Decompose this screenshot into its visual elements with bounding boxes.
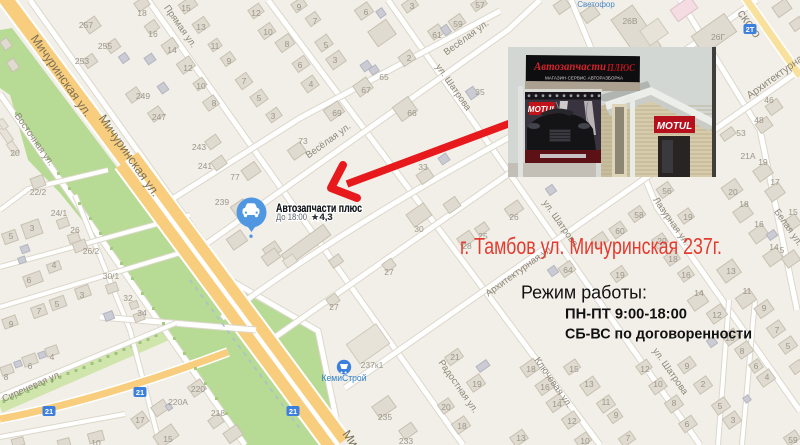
svg-text:255: 255 xyxy=(98,41,112,51)
svg-text:48: 48 xyxy=(754,115,764,125)
svg-text:58: 58 xyxy=(634,210,644,220)
svg-text:7: 7 xyxy=(775,325,780,335)
svg-text:6: 6 xyxy=(685,419,690,429)
svg-text:6: 6 xyxy=(754,361,759,371)
svg-text:14: 14 xyxy=(769,242,779,252)
svg-text:10: 10 xyxy=(196,81,206,91)
svg-text:19: 19 xyxy=(758,157,768,167)
svg-text:13: 13 xyxy=(196,22,206,32)
svg-text:21: 21 xyxy=(289,407,297,416)
svg-text:26: 26 xyxy=(70,225,80,235)
svg-text:26Г: 26Г xyxy=(711,32,725,42)
svg-text:61: 61 xyxy=(432,30,442,40)
svg-text:18: 18 xyxy=(457,421,467,431)
svg-text:20: 20 xyxy=(728,187,738,197)
svg-text:6: 6 xyxy=(28,361,33,371)
svg-text:СБ-ВС по договоренности: СБ-ВС по договоренности xyxy=(565,326,752,343)
svg-text:9: 9 xyxy=(227,56,232,66)
svg-text:26В: 26В xyxy=(622,16,637,26)
svg-text:16: 16 xyxy=(148,29,158,39)
svg-text:8: 8 xyxy=(740,346,745,356)
svg-text:18: 18 xyxy=(137,8,147,18)
svg-text:19: 19 xyxy=(472,379,482,389)
svg-text:59: 59 xyxy=(453,19,463,29)
svg-text:4: 4 xyxy=(50,352,55,362)
svg-text:9: 9 xyxy=(762,303,767,313)
svg-text:46: 46 xyxy=(764,95,774,105)
svg-text:12: 12 xyxy=(567,416,577,426)
svg-text:14: 14 xyxy=(167,45,177,55)
svg-text:7: 7 xyxy=(37,306,42,316)
svg-text:56: 56 xyxy=(662,186,672,196)
svg-text:12: 12 xyxy=(251,8,261,18)
svg-text:11: 11 xyxy=(211,41,220,51)
svg-text:64: 64 xyxy=(563,265,573,275)
svg-text:г. Тамбов ул. Мичуринская 237г: г. Тамбов ул. Мичуринская 237г. xyxy=(460,233,722,259)
svg-text:66: 66 xyxy=(407,108,417,118)
svg-text:4,3: 4,3 xyxy=(320,212,333,223)
svg-text:8: 8 xyxy=(672,398,677,408)
svg-text:4: 4 xyxy=(52,260,57,270)
svg-text:9: 9 xyxy=(614,410,619,420)
svg-text:21А: 21А xyxy=(740,151,755,161)
svg-text:3: 3 xyxy=(80,290,85,300)
svg-text:21: 21 xyxy=(45,407,53,416)
svg-text:6: 6 xyxy=(364,7,369,17)
svg-text:20: 20 xyxy=(10,148,20,158)
svg-text:241: 241 xyxy=(198,161,212,171)
svg-text:МАГАЗИН·СЕРВИС·АВТОРАЗБОРКА: МАГАЗИН·СЕРВИС·АВТОРАЗБОРКА xyxy=(545,76,623,81)
svg-text:6: 6 xyxy=(298,60,303,70)
svg-text:30/1: 30/1 xyxy=(103,271,120,281)
svg-text:247: 247 xyxy=(152,112,166,122)
svg-text:10: 10 xyxy=(263,27,273,37)
svg-text:243: 243 xyxy=(192,142,206,152)
svg-text:10: 10 xyxy=(653,379,663,389)
svg-text:33: 33 xyxy=(418,162,428,172)
svg-text:10: 10 xyxy=(91,438,101,445)
svg-text:★: ★ xyxy=(311,212,319,222)
svg-text:19: 19 xyxy=(615,270,625,280)
svg-text:69: 69 xyxy=(332,108,342,118)
svg-text:34: 34 xyxy=(137,308,147,318)
svg-text:17: 17 xyxy=(770,177,780,187)
svg-text:218: 218 xyxy=(211,408,225,418)
svg-text:77: 77 xyxy=(230,172,240,182)
svg-text:Автозапчасти: Автозапчасти xyxy=(533,59,606,73)
svg-text:5: 5 xyxy=(786,341,791,351)
svg-text:4: 4 xyxy=(765,372,770,382)
svg-text:32: 32 xyxy=(123,293,133,303)
svg-text:220: 220 xyxy=(191,384,205,394)
svg-text:22/2: 22/2 xyxy=(30,187,47,197)
svg-text:239: 239 xyxy=(215,197,229,207)
svg-text:27: 27 xyxy=(329,302,339,312)
svg-text:12: 12 xyxy=(640,364,650,374)
svg-text:3: 3 xyxy=(30,223,35,233)
svg-text:253: 253 xyxy=(75,56,89,66)
svg-text:35: 35 xyxy=(475,87,485,97)
svg-text:26/2: 26/2 xyxy=(83,246,100,256)
svg-text:235: 235 xyxy=(378,412,392,422)
svg-text:5: 5 xyxy=(257,93,262,103)
svg-text:9: 9 xyxy=(685,361,690,371)
svg-text:2: 2 xyxy=(407,53,412,63)
svg-text:4: 4 xyxy=(309,79,314,89)
svg-text:21: 21 xyxy=(450,352,460,362)
svg-text:67: 67 xyxy=(361,85,371,95)
svg-text:MOTUL: MOTUL xyxy=(657,121,693,132)
svg-text:3: 3 xyxy=(271,111,276,121)
svg-text:16: 16 xyxy=(681,270,691,280)
svg-text:237к1: 237к1 xyxy=(361,360,384,370)
svg-text:17: 17 xyxy=(135,415,145,425)
svg-text:До 18:00: До 18:00 xyxy=(276,212,307,223)
svg-text:3: 3 xyxy=(333,55,338,65)
svg-text:59: 59 xyxy=(788,435,798,445)
svg-text:14: 14 xyxy=(694,288,704,298)
svg-text:15: 15 xyxy=(181,3,191,13)
svg-text:57: 57 xyxy=(475,0,485,10)
svg-text:5: 5 xyxy=(9,231,14,241)
svg-text:8: 8 xyxy=(212,98,217,108)
svg-text:5: 5 xyxy=(324,40,329,50)
svg-text:ПН-ПТ 9:00-18:00: ПН-ПТ 9:00-18:00 xyxy=(565,306,687,323)
svg-text:220А: 220А xyxy=(168,397,188,407)
svg-text:2: 2 xyxy=(701,379,706,389)
svg-text:5: 5 xyxy=(780,245,785,255)
svg-text:257: 257 xyxy=(79,20,93,30)
svg-text:27: 27 xyxy=(384,267,394,277)
svg-text:12: 12 xyxy=(183,63,193,73)
svg-text:30: 30 xyxy=(414,224,424,234)
svg-text:8: 8 xyxy=(285,39,290,49)
svg-text:9: 9 xyxy=(297,2,302,12)
svg-text:15: 15 xyxy=(163,434,173,444)
svg-text:5: 5 xyxy=(718,401,723,411)
svg-text:3: 3 xyxy=(731,415,736,425)
svg-text:3: 3 xyxy=(410,1,415,11)
svg-text:13: 13 xyxy=(726,266,736,276)
svg-text:15: 15 xyxy=(569,364,579,374)
svg-text:24/1: 24/1 xyxy=(51,208,68,218)
svg-text:9: 9 xyxy=(9,319,14,329)
svg-text:7: 7 xyxy=(313,16,318,26)
svg-text:ПЛЮС: ПЛЮС xyxy=(606,62,635,74)
svg-text:Светофор: Светофор xyxy=(577,0,615,9)
svg-text:13: 13 xyxy=(584,379,594,389)
svg-text:12: 12 xyxy=(712,310,722,320)
svg-text:10: 10 xyxy=(580,436,590,445)
svg-text:21: 21 xyxy=(136,388,144,397)
svg-text:11: 11 xyxy=(743,286,752,296)
svg-text:6: 6 xyxy=(27,275,32,285)
svg-text:19: 19 xyxy=(683,212,693,222)
svg-text:73: 73 xyxy=(298,136,308,146)
svg-text:7: 7 xyxy=(242,76,247,86)
svg-text:5: 5 xyxy=(55,299,60,309)
svg-text:8: 8 xyxy=(4,372,9,382)
svg-text:16: 16 xyxy=(754,219,764,229)
svg-text:2Т: 2Т xyxy=(746,25,755,34)
svg-text:249: 249 xyxy=(136,91,150,101)
svg-text:65: 65 xyxy=(379,72,389,82)
svg-text:20: 20 xyxy=(441,402,451,412)
svg-text:15: 15 xyxy=(788,207,798,217)
svg-text:233: 233 xyxy=(399,436,413,445)
svg-text:11: 11 xyxy=(602,397,611,407)
svg-text:18: 18 xyxy=(739,199,749,209)
svg-text:13: 13 xyxy=(516,433,526,443)
svg-text:7: 7 xyxy=(626,433,631,443)
svg-text:53: 53 xyxy=(736,128,746,138)
svg-text:КемиСтрой: КемиСтрой xyxy=(322,373,367,384)
svg-text:Режим работы:: Режим работы: xyxy=(521,283,647,303)
svg-text:26: 26 xyxy=(509,212,519,222)
